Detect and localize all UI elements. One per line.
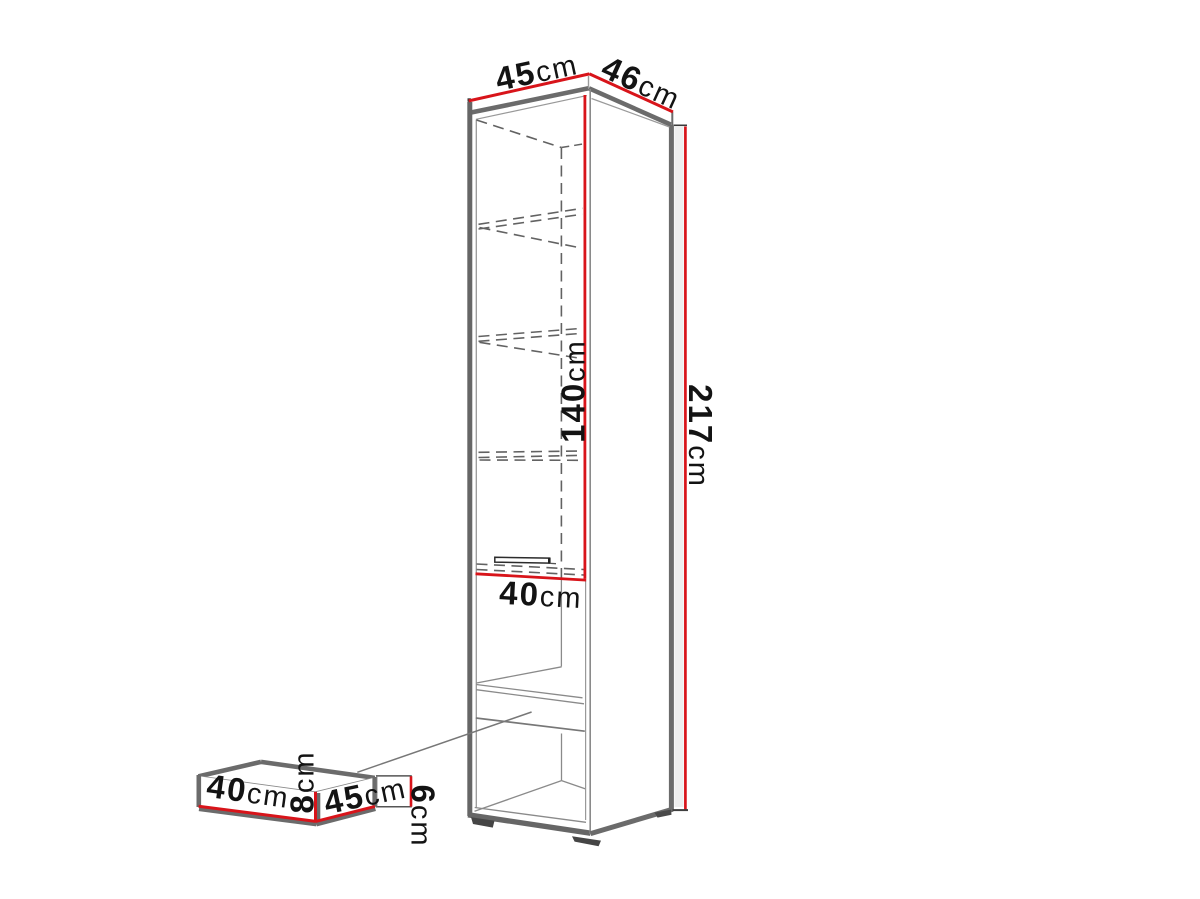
svg-text:140cm: 140cm	[555, 339, 592, 443]
svg-text:8cm: 8cm	[284, 750, 321, 813]
svg-text:6cm: 6cm	[405, 784, 442, 847]
svg-text:217cm: 217cm	[682, 384, 719, 488]
